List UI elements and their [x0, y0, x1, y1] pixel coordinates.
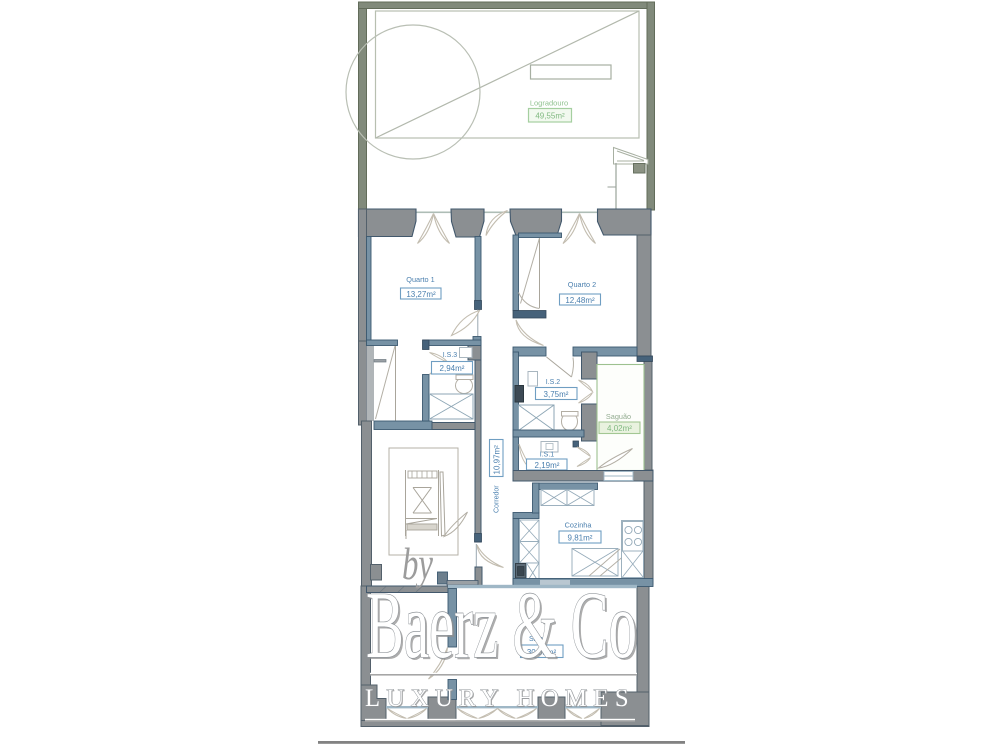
svg-text:9,81m²: 9,81m² — [568, 534, 593, 543]
svg-text:49,55m²: 49,55m² — [535, 112, 565, 121]
svg-text:LUXURY HOMES: LUXURY HOMES — [365, 685, 635, 712]
svg-text:Logradouro: Logradouro — [530, 99, 568, 108]
svg-text:I.S.3: I.S.3 — [443, 352, 458, 359]
svg-text:I.S.1: I.S.1 — [540, 452, 555, 459]
svg-text:10,97m²: 10,97m² — [493, 445, 502, 475]
svg-text:12,48m²: 12,48m² — [565, 296, 595, 305]
svg-text:Saguão: Saguão — [606, 412, 631, 421]
svg-text:13,27m²: 13,27m² — [406, 290, 436, 299]
svg-text:Quarto 1: Quarto 1 — [406, 275, 434, 284]
svg-text:4,02m²: 4,02m² — [607, 424, 632, 433]
svg-text:Quarto 2: Quarto 2 — [568, 280, 596, 289]
svg-text:Corredor: Corredor — [494, 485, 501, 513]
svg-text:3,75m²: 3,75m² — [544, 390, 569, 399]
svg-text:Baerz & Co: Baerz & Co — [366, 572, 637, 678]
svg-text:Cozinha: Cozinha — [565, 521, 593, 530]
svg-text:2,19m²: 2,19m² — [535, 461, 560, 470]
svg-text:I.S.2: I.S.2 — [546, 379, 561, 386]
svg-text:2,94m²: 2,94m² — [440, 364, 465, 373]
